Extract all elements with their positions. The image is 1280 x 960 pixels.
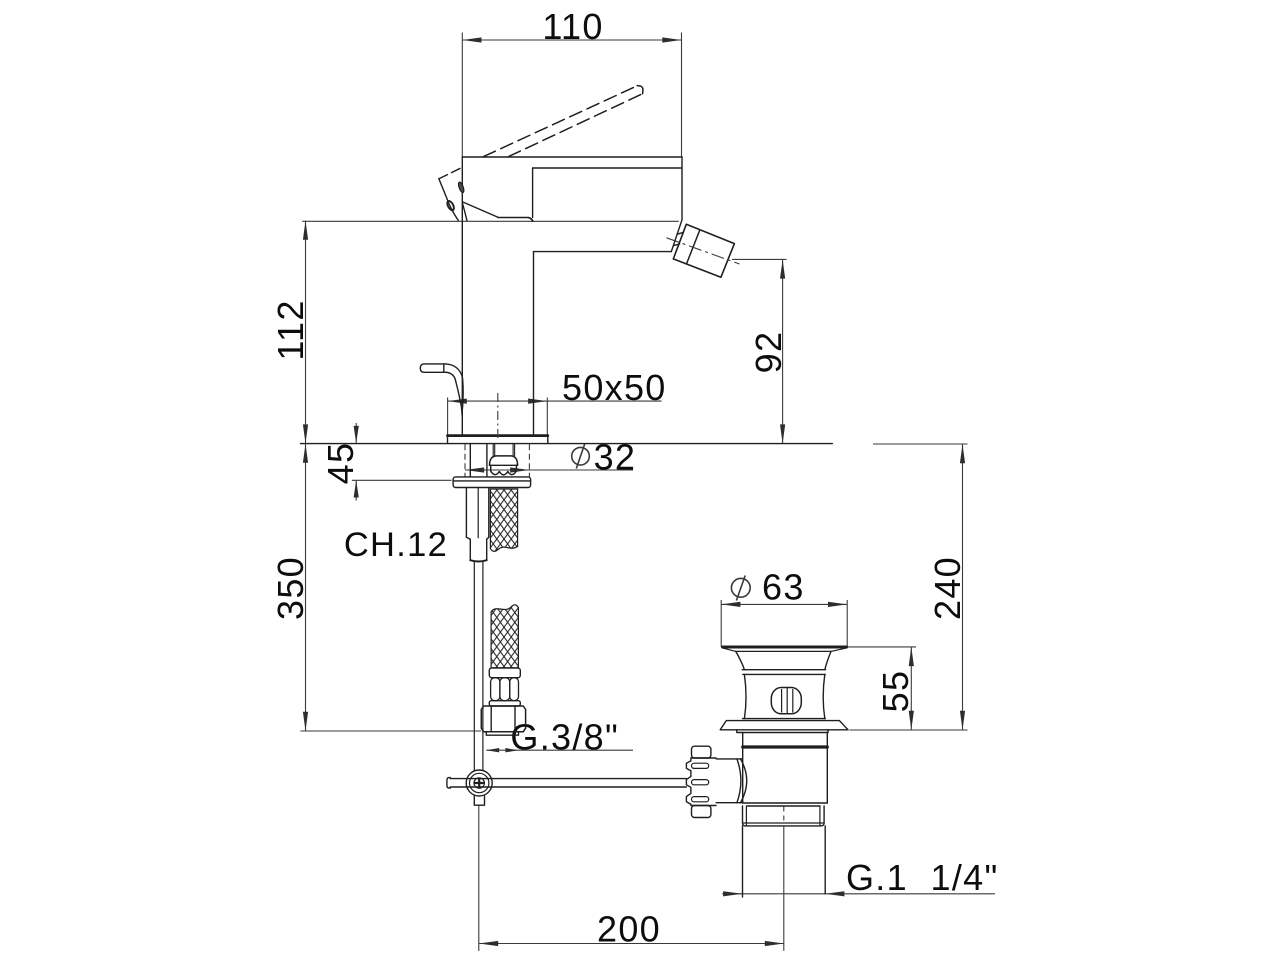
svg-text:63: 63 [762,567,805,608]
svg-text:350: 350 [270,556,311,620]
svg-text:110: 110 [542,6,603,47]
svg-text:55: 55 [875,670,916,713]
svg-text:240: 240 [927,556,968,620]
svg-text:112: 112 [270,299,311,360]
svg-text:G.1 1/4": G.1 1/4" [846,857,999,898]
svg-text:CH.12: CH.12 [344,526,448,564]
svg-text:45: 45 [320,442,361,485]
svg-text:G.3/8": G.3/8" [510,716,619,757]
svg-text:200: 200 [597,909,661,950]
svg-text:50x50: 50x50 [562,367,667,408]
svg-text:92: 92 [748,331,789,374]
svg-text:32: 32 [594,436,637,477]
